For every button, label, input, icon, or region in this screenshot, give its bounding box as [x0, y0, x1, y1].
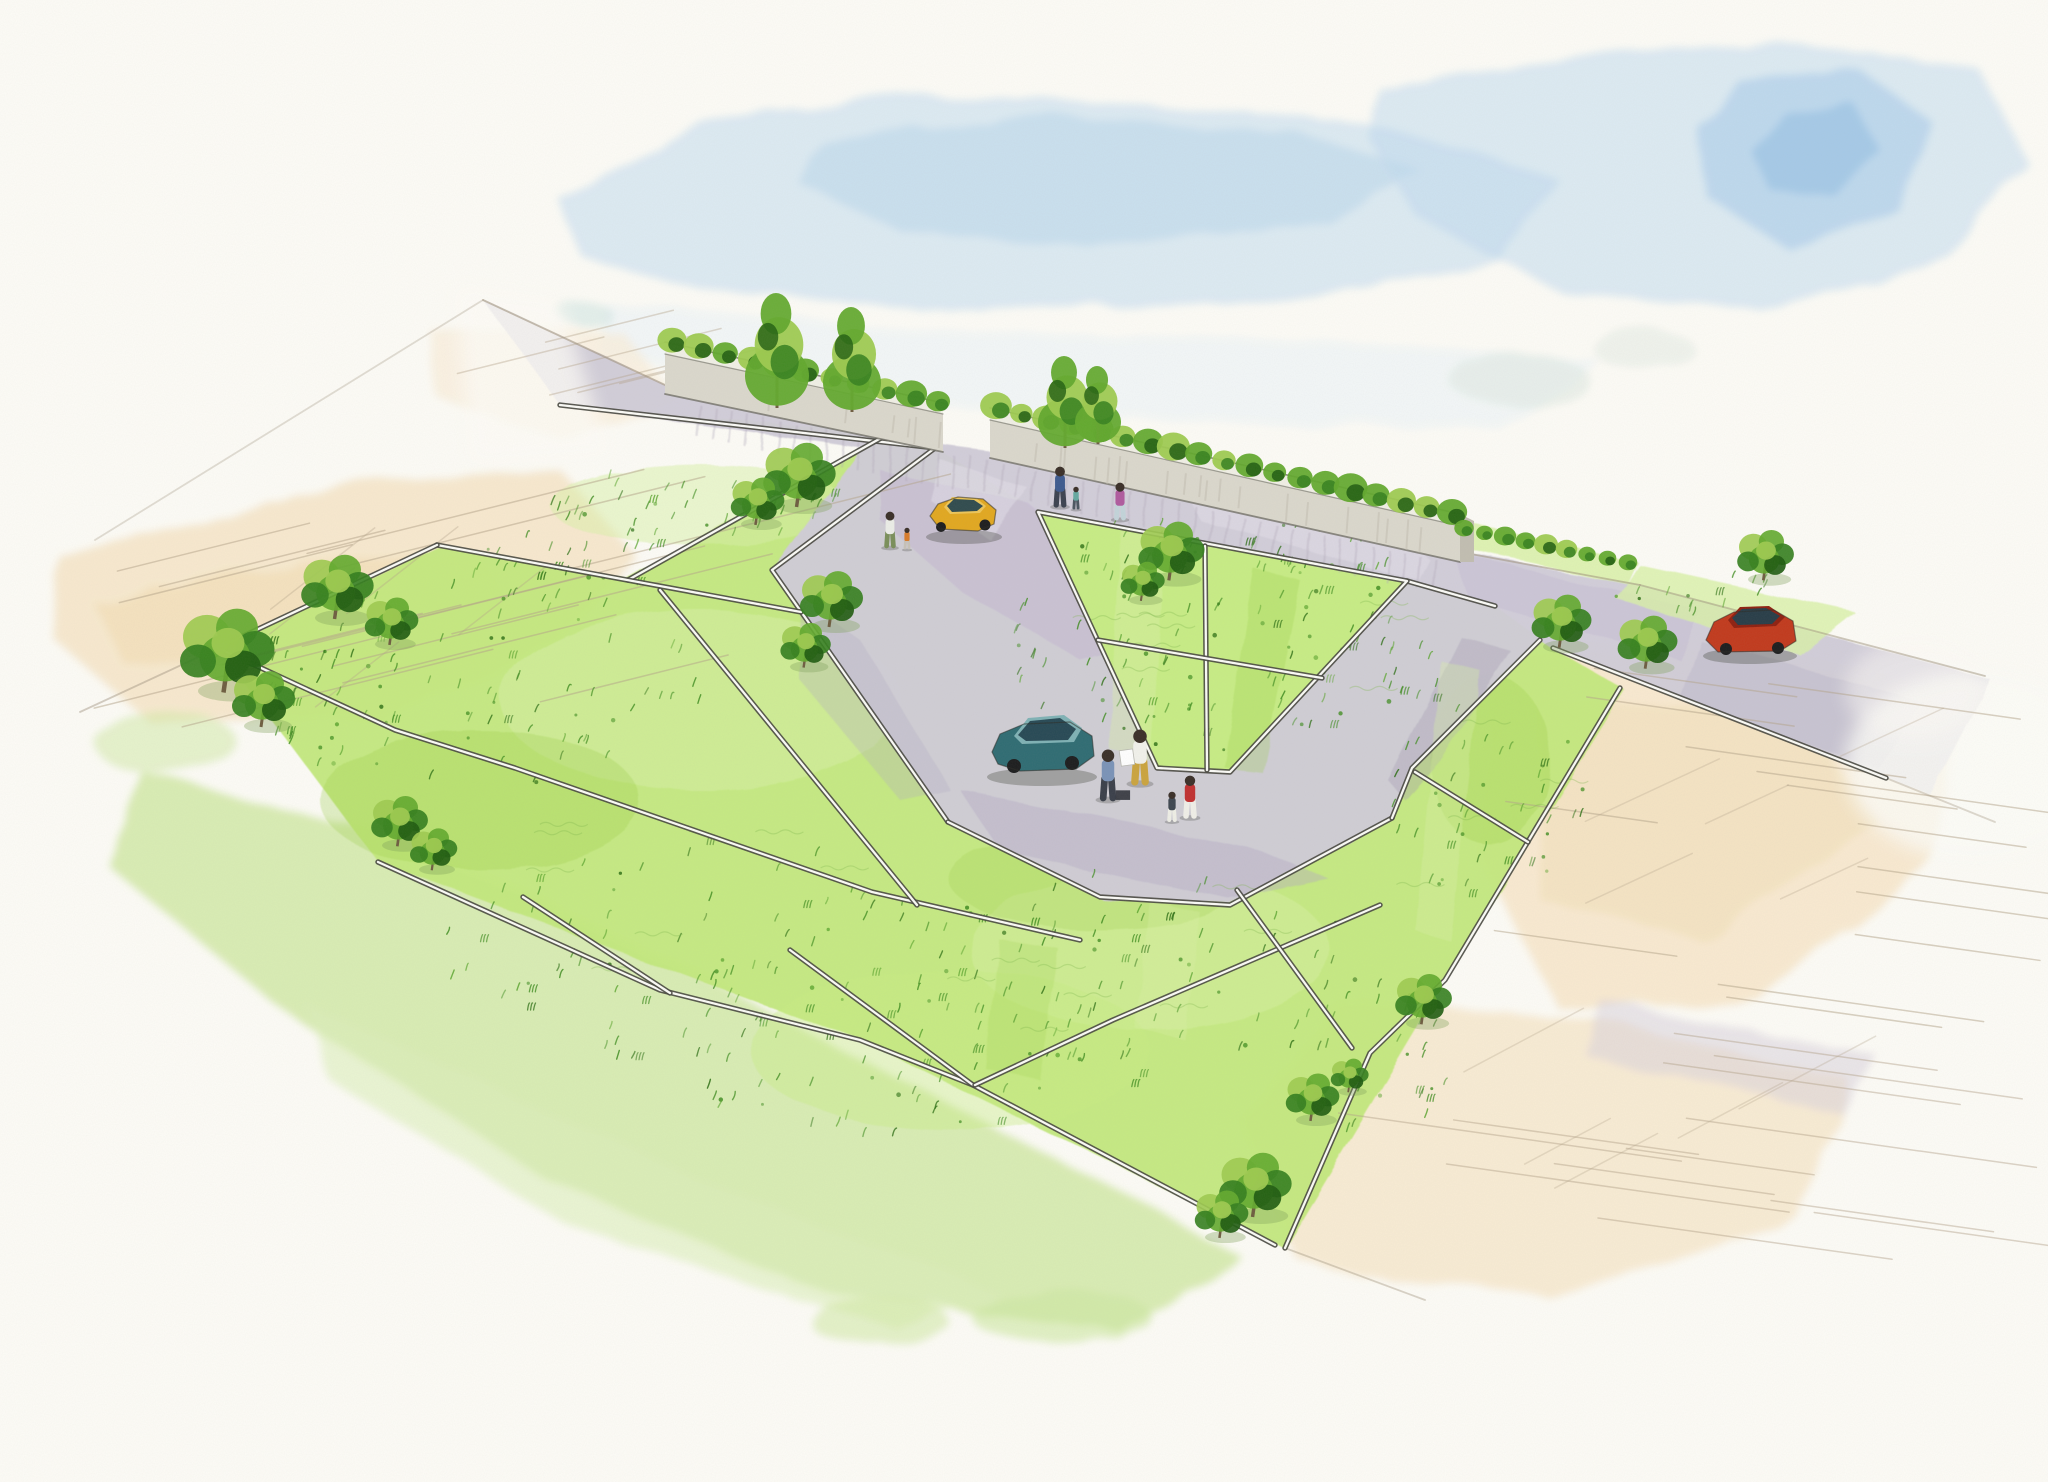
subdivision-watercolor-scene	[0, 0, 2048, 1482]
paper-grain-overlay	[0, 0, 2048, 1482]
illustration-page	[0, 0, 2048, 1482]
